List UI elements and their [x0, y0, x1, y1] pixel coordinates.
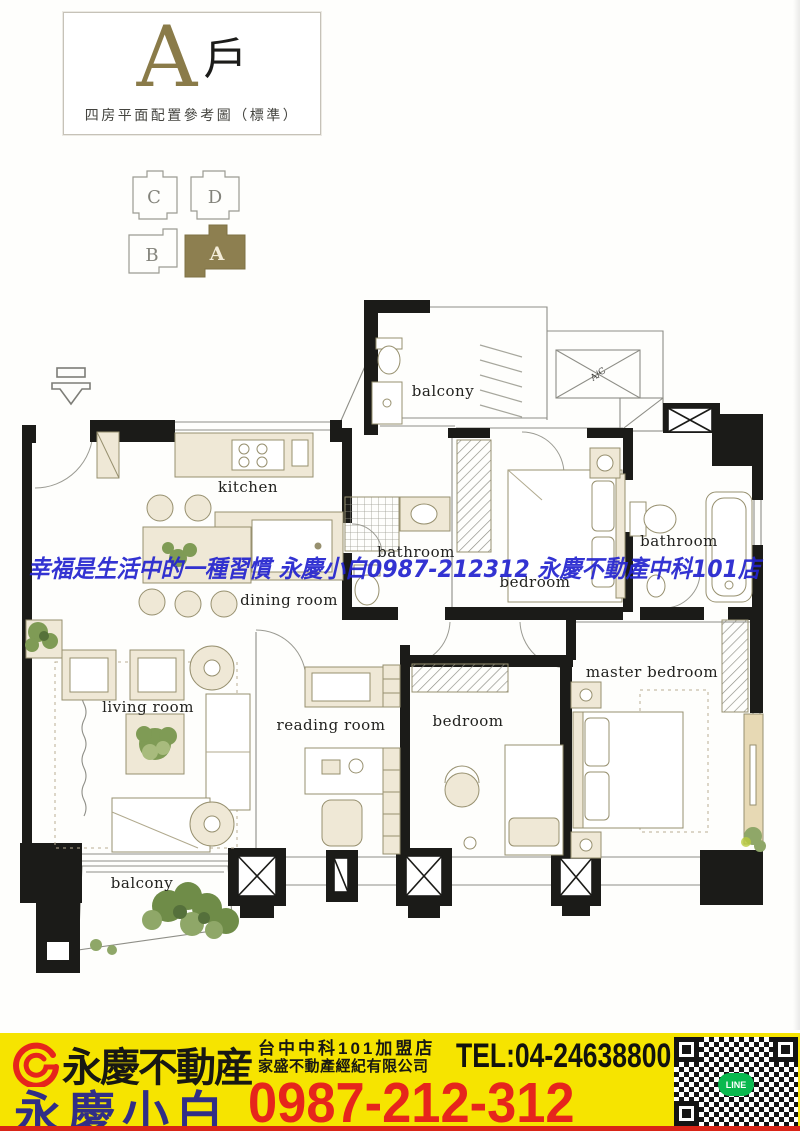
room-label-dining: dining room — [240, 591, 338, 609]
furniture — [26, 338, 763, 858]
agent-name: 永慶小白 — [14, 1075, 230, 1131]
balcony-hatch — [480, 345, 522, 417]
store-name: 台中中科101加盟店 — [258, 1040, 435, 1059]
agent-phone: 0987-212-312 — [248, 1070, 575, 1131]
room-label-master: master bedroom — [586, 663, 718, 681]
room-label-bedroom-3: bedroom — [432, 712, 503, 730]
ac-label: A/C — [588, 366, 608, 384]
room-label-balcony-top: balcony — [412, 382, 474, 400]
watermark-text: 幸福是生活中的一種習慣 永慶小白0987-212312 永慶不動產中科101店 — [28, 549, 755, 584]
room-label-bathroom-2: bathroom — [640, 532, 718, 550]
line-badge: LINE — [718, 1073, 754, 1096]
flyer: A戶 四房平面配置參考圖（標準） C D B A — [0, 0, 800, 1131]
footer-banner: 永慶不動産 台中中科101加盟店 家盛不動產經紀有限公司 TEL:04-2463… — [0, 1033, 800, 1131]
qr-finder-icon — [773, 1037, 798, 1062]
room-label-kitchen: kitchen — [218, 478, 278, 496]
scan-edge — [793, 0, 800, 1030]
qr-finder-icon — [674, 1101, 699, 1126]
room-label-balcony-bottom: balcony — [111, 874, 173, 892]
qr-finder-icon — [674, 1037, 699, 1062]
banner-red-strip — [0, 1126, 800, 1131]
room-label-living: living room — [102, 698, 194, 716]
line-qr-code: LINE — [674, 1037, 798, 1126]
room-label-reading: reading room — [277, 716, 386, 734]
